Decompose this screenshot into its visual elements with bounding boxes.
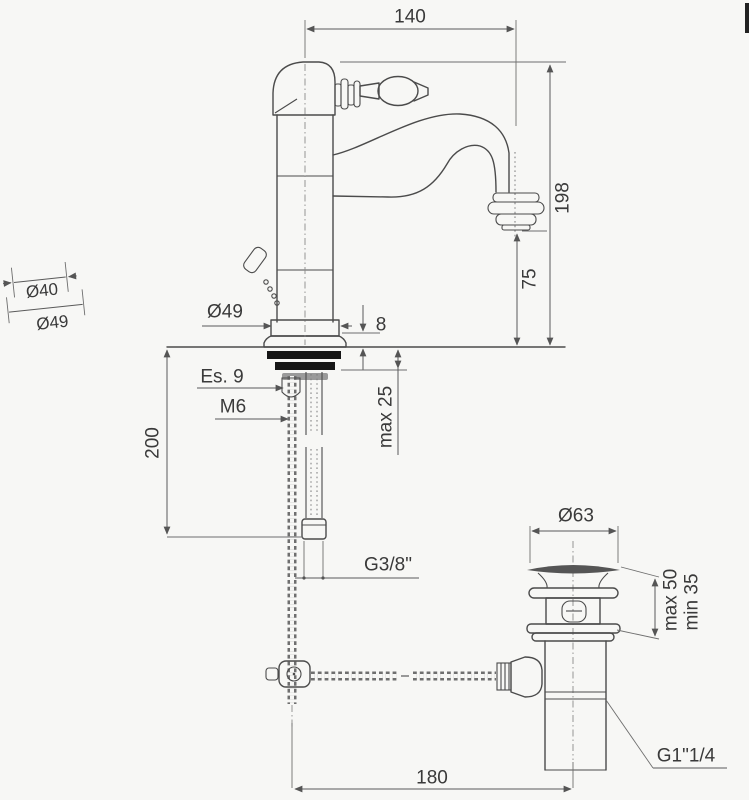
dim-hose-drop-label: 200 [143, 427, 164, 459]
dim-deck-thickness: max 25 [341, 350, 407, 455]
dim-rod-to-waste: 180 [292, 723, 573, 789]
dim-waste-diameter-label: Ø63 [558, 506, 594, 527]
faucet-body [242, 62, 428, 380]
dim-escutcheon-height: 8 [342, 305, 386, 370]
faucet-head [273, 62, 335, 115]
waste-ring-1 [529, 588, 618, 598]
callout-hex-size: Es. 9 [197, 367, 283, 389]
waste-flange [527, 565, 620, 574]
dim-spout-height: 75 [517, 231, 547, 345]
callout-stud-thread-label: M6 [220, 397, 246, 418]
callout-stud-thread: M6 [215, 397, 288, 420]
waste-waist-right [599, 573, 608, 588]
dim-rod-to-waste-label: 180 [416, 768, 448, 789]
hang-tag [242, 245, 269, 274]
dim-handle-bottom-label: Ø49 [35, 312, 69, 334]
callout-hex-size-label: Es. 9 [200, 367, 243, 388]
spout-lower-curve [333, 145, 496, 197]
handle-knob [378, 77, 418, 106]
dim-handle-detail: Ø40 Ø49 [1, 261, 86, 337]
dim-total-height-label: 198 [553, 182, 574, 214]
callout-hose-thread: G3/8" [295, 541, 419, 580]
dim-spout-height-label: 75 [520, 268, 541, 289]
waste-waist-left [538, 573, 547, 588]
dim-deck-thickness-label: max 25 [376, 386, 397, 448]
dim-base-diameter-label: Ø49 [207, 302, 243, 323]
waste-ring-2 [527, 624, 620, 633]
spout-outlet [488, 193, 544, 230]
handle-collar [335, 79, 360, 109]
flexible-hose [306, 372, 322, 518]
waste-assembly [527, 541, 620, 770]
callout-waste-thread-label: G1"1/4 [657, 746, 716, 767]
dim-waste-diameter: Ø63 [530, 506, 618, 564]
dim-waste-range: max 50 min 35 [617, 567, 703, 639]
dim-waste-min-label: min 35 [682, 573, 703, 630]
waste-tailpipe [545, 641, 606, 770]
technical-drawing-page: 140 198 75 Ø49 8 Es. 9 M6 200 [0, 0, 749, 800]
under-deck-parts [266, 372, 542, 727]
spout [333, 114, 544, 240]
gasket-lower [275, 362, 335, 370]
dim-spout-reach-label: 140 [394, 7, 426, 28]
dim-waste-max-label: max 50 [661, 569, 682, 631]
handle-lever [360, 83, 379, 99]
spout-upper-curve [333, 114, 509, 192]
faucet-dimensional-drawing: 140 198 75 Ø49 8 Es. 9 M6 200 [0, 0, 749, 800]
dim-escutcheon-height-label: 8 [376, 315, 387, 336]
callout-waste-thread: G1"1/4 [606, 700, 727, 768]
hex-nut [282, 378, 300, 397]
dim-spout-reach: 140 [305, 7, 516, 127]
edge-artifact [745, 3, 749, 33]
dim-total-height: 198 [550, 65, 574, 345]
gasket-upper [267, 351, 341, 359]
hose-end-fitting [302, 519, 326, 539]
linkage-ball-joint [497, 657, 542, 697]
callout-hose-thread-label: G3/8" [364, 555, 412, 576]
dim-handle-top-label: Ø40 [25, 279, 59, 301]
faucet-head-accent [275, 99, 297, 113]
